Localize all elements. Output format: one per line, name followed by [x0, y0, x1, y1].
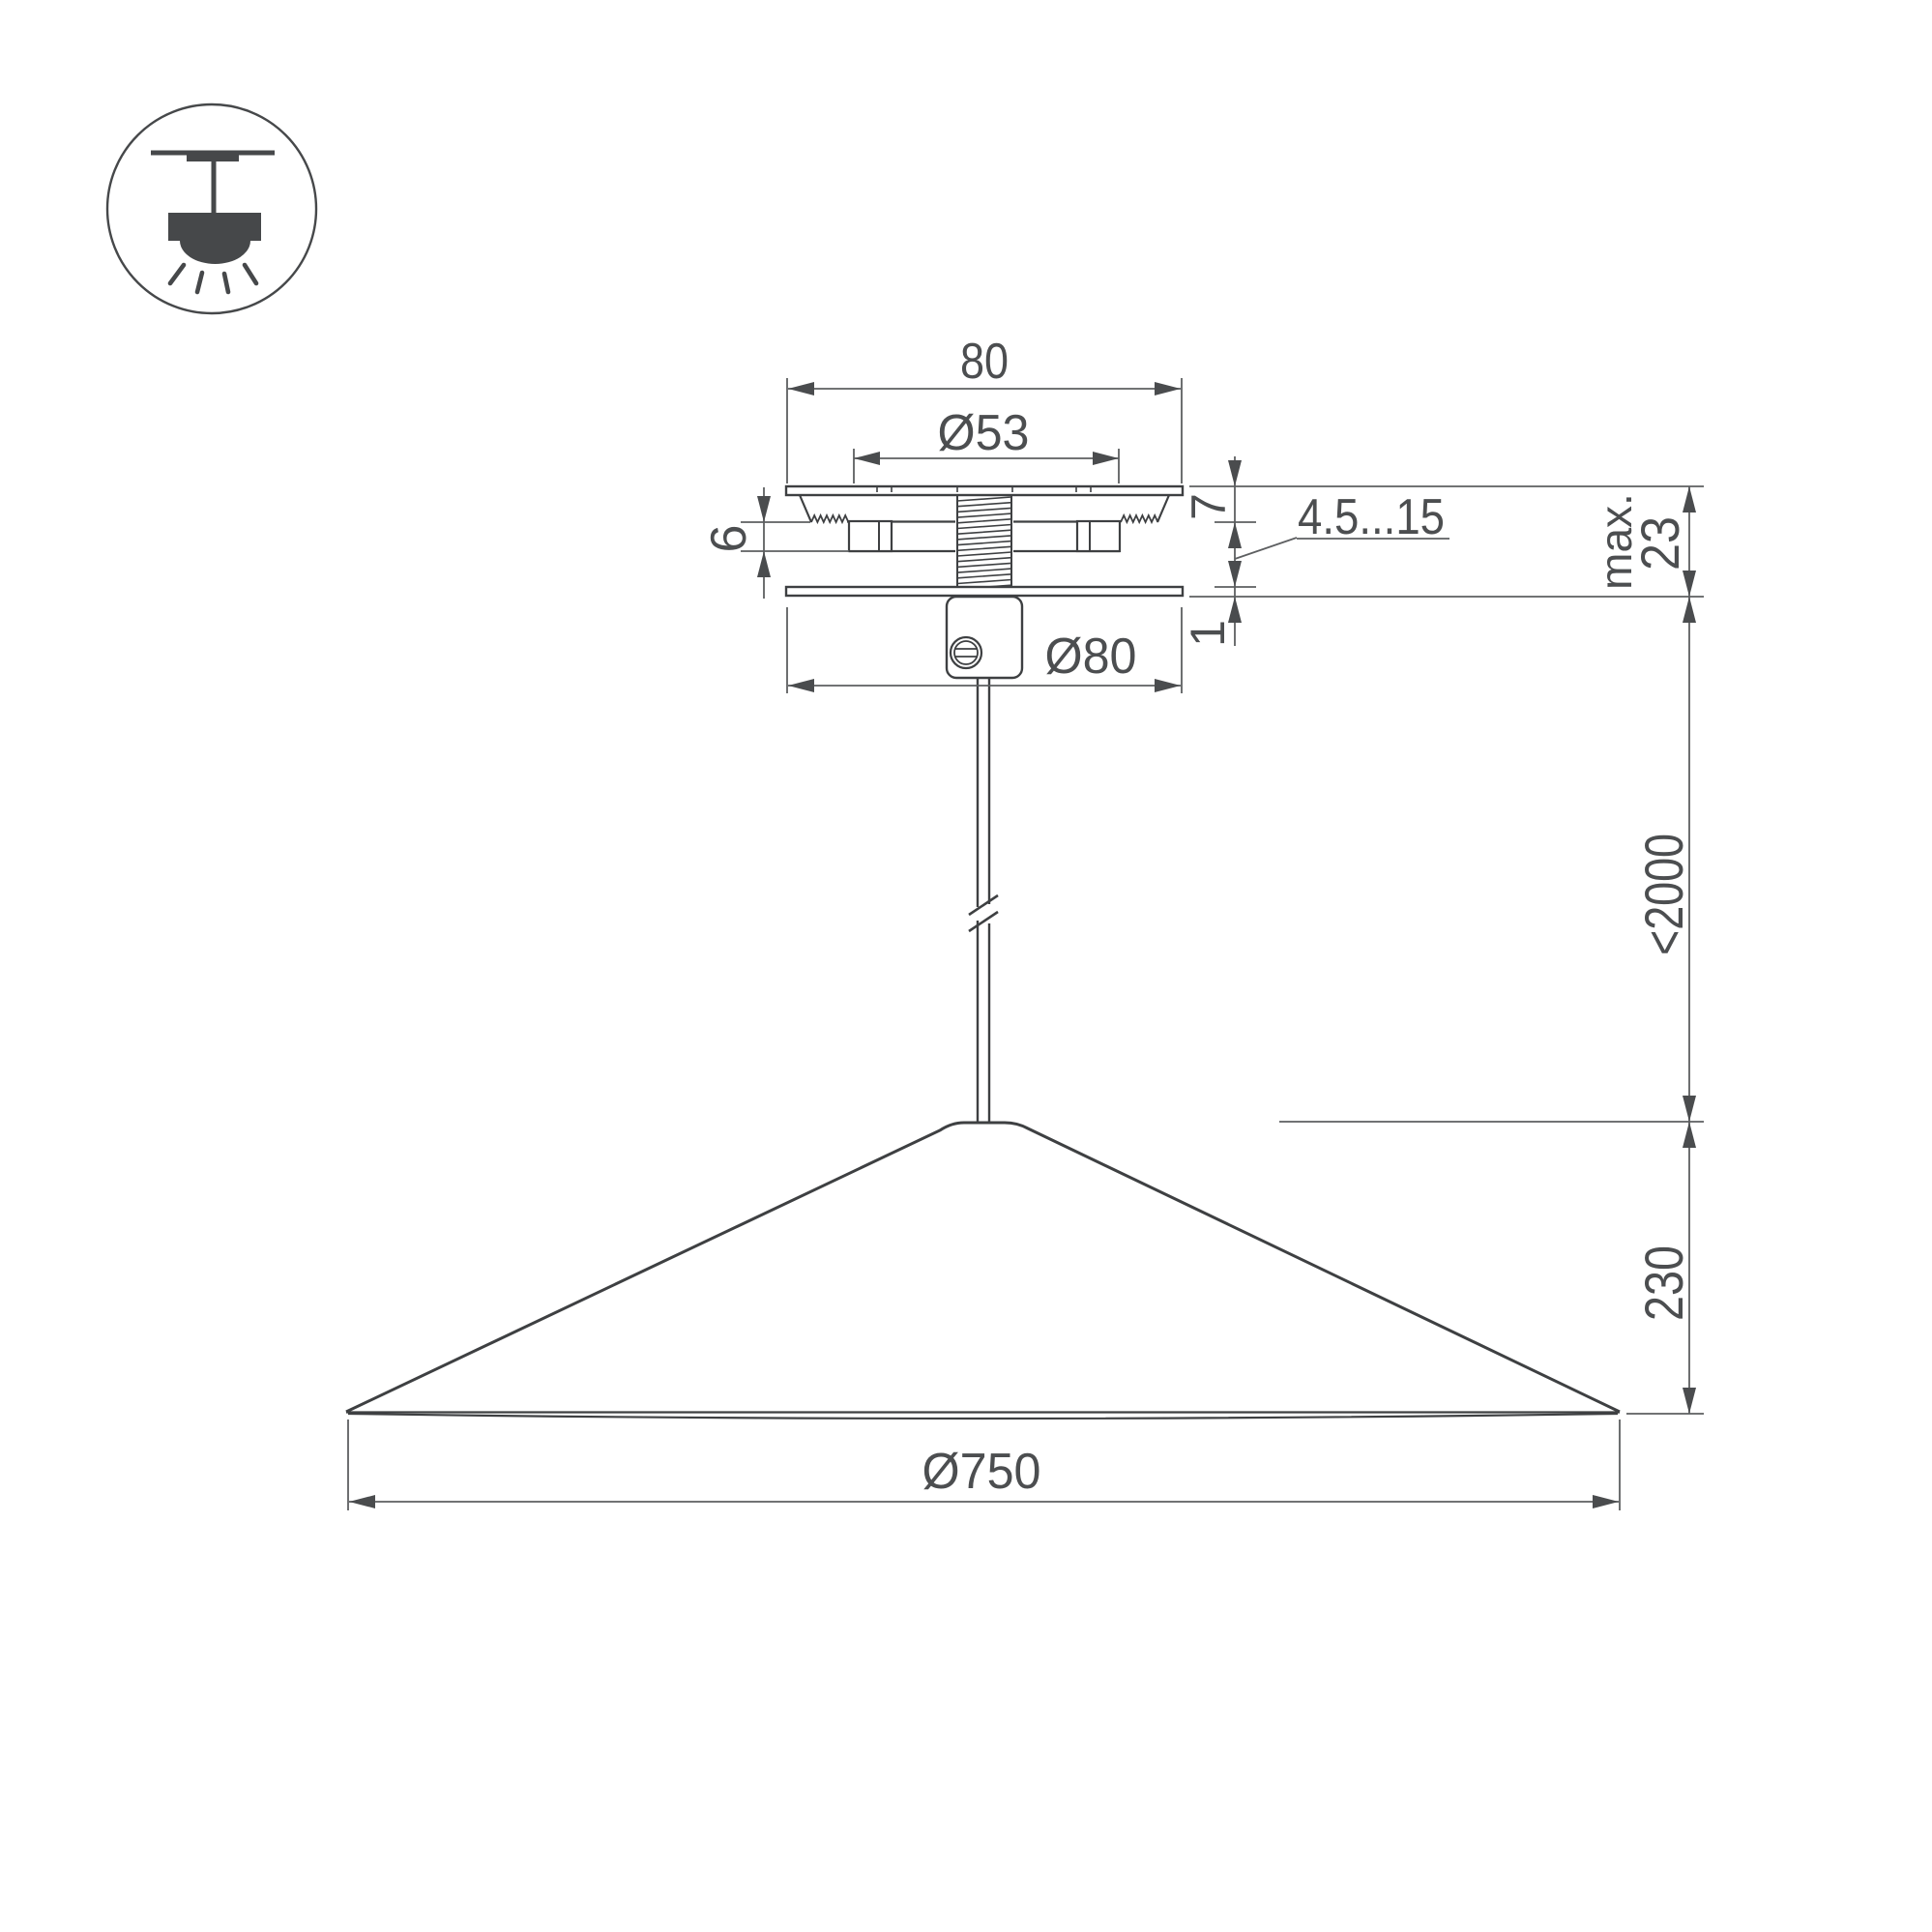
- mount-type-icon: [107, 104, 316, 313]
- shade-rim-bottom: [348, 1414, 1618, 1419]
- dimension-clamp-height: 6: [701, 487, 849, 599]
- dim-clamp-height-label: 6: [701, 525, 757, 553]
- dim-base-plate-thickness-label: 1: [1181, 620, 1235, 647]
- dimension-column-right: max. 23 <2000 230: [1189, 486, 1704, 1414]
- canopy-top-plate: [786, 486, 1183, 495]
- skirt-edge-left: [800, 495, 811, 522]
- dimension-chain-canopy: 7 1 4.5...15: [1181, 456, 1449, 647]
- dim-canopy-width-label: 80: [960, 334, 1009, 390]
- dim-canopy-top-height-label: 7: [1182, 493, 1236, 520]
- cone-shade: [346, 1123, 1620, 1419]
- suspension-cord: [969, 678, 998, 1122]
- dim-shade-height-label: 230: [1633, 1245, 1694, 1321]
- canopy-base-plate: [786, 587, 1183, 596]
- clamp-jaw-left: [849, 521, 892, 551]
- dim-max-value: 23: [1629, 516, 1690, 571]
- cord-break-symbol: [969, 895, 998, 931]
- clamp-jaw-right: [1077, 521, 1120, 551]
- serration-right: [1121, 515, 1157, 522]
- threaded-rod: [955, 494, 1013, 594]
- dim-ceiling-thickness-label: 4.5...15: [1298, 489, 1445, 545]
- dim-suspension-length-label: <2000: [1633, 834, 1694, 955]
- dim-canopy-diameter-label: Ø80: [1045, 629, 1137, 685]
- dimension-canopy-hole: Ø53: [854, 405, 1119, 483]
- icon-light-rays: [170, 265, 256, 292]
- shade-outline: [346, 1123, 1620, 1412]
- skirt-edge-right: [1157, 495, 1169, 522]
- icon-lamp-body: [168, 213, 261, 241]
- technical-drawing-page: 80 Ø53 6 7 1 4.5...15: [0, 0, 1932, 1932]
- icon-mount-bracket: [187, 153, 239, 161]
- icon-lamp-dome: [180, 241, 250, 264]
- serration-left: [811, 515, 848, 522]
- dim-canopy-hole-label: Ø53: [938, 405, 1030, 461]
- dim-shade-diameter-label: Ø750: [922, 1444, 1041, 1500]
- dimension-shade-diameter: Ø750: [348, 1420, 1620, 1510]
- pendant-lamp-dimension-drawing: 80 Ø53 6 7 1 4.5...15: [0, 0, 1932, 1932]
